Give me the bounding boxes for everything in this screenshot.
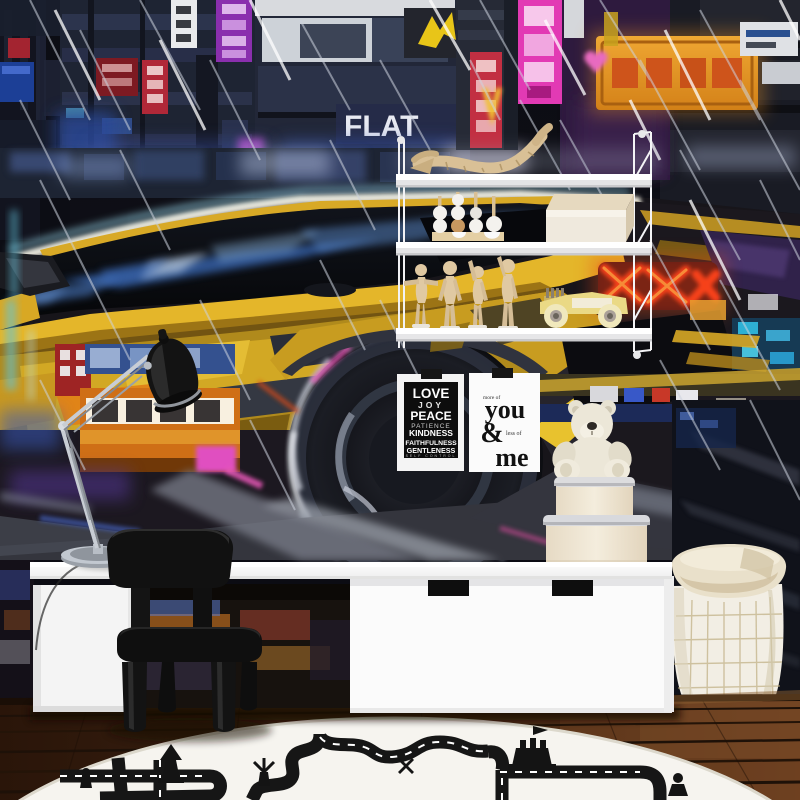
svg-text:SELF CONTROL: SELF CONTROL	[406, 454, 457, 458]
svg-text:me: me	[495, 443, 528, 472]
svg-text:less of: less of	[506, 430, 522, 437]
svg-text:KINDNESS: KINDNESS	[409, 428, 453, 438]
svg-text:LOVE: LOVE	[413, 386, 450, 401]
svg-text:PEACE: PEACE	[410, 409, 451, 423]
svg-text:FLAT: FLAT	[344, 110, 418, 143]
